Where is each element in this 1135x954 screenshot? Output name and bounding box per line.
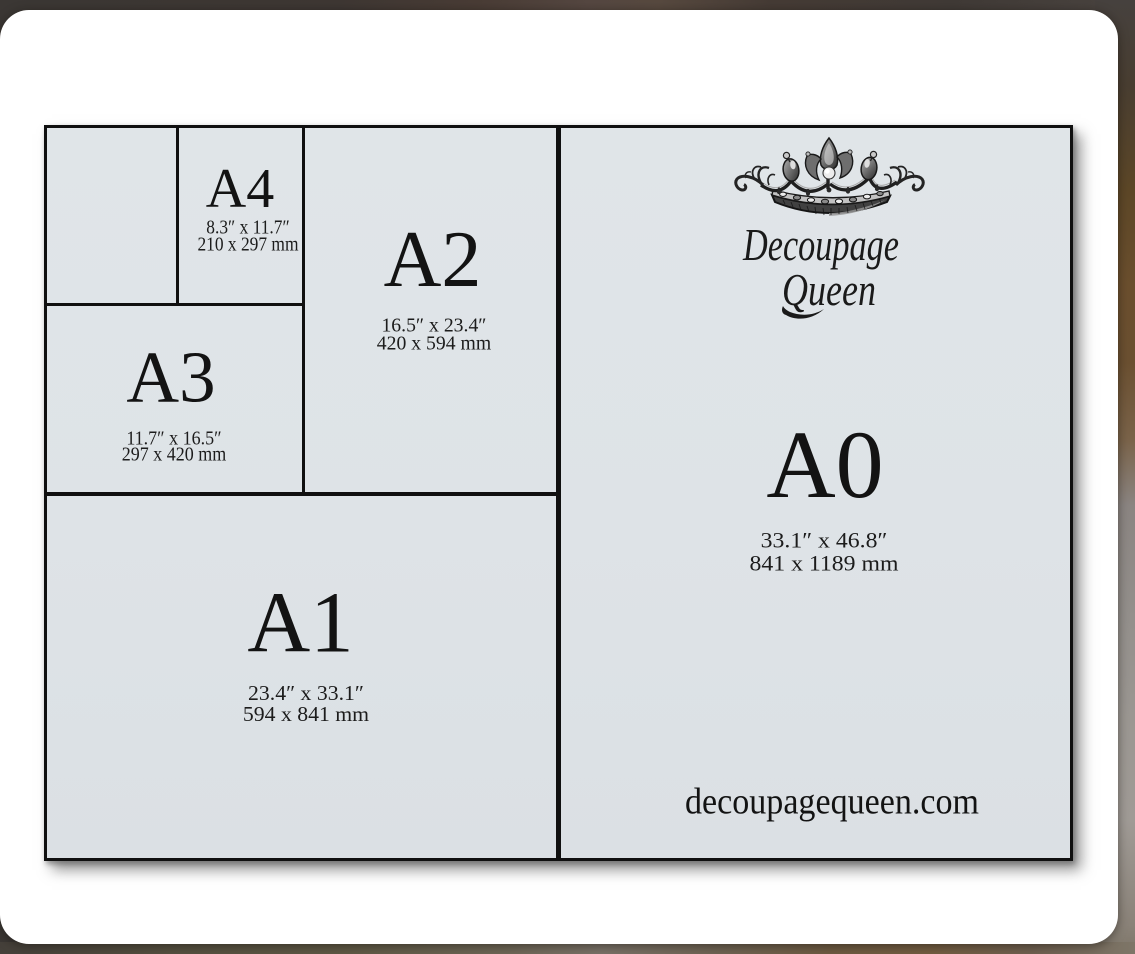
svg-text:Decoupage: Decoupage (742, 222, 899, 270)
svg-text:Queen: Queen (782, 264, 876, 315)
